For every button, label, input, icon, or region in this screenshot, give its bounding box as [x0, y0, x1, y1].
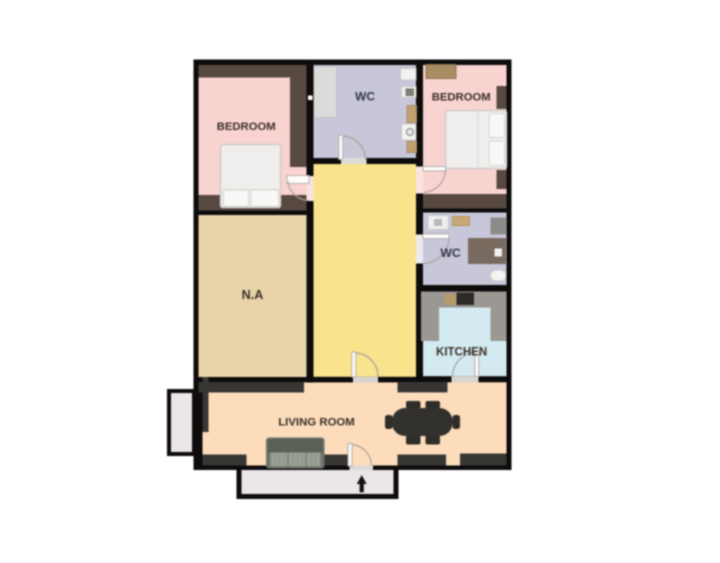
svg-text:BEDROOM: BEDROOM — [217, 121, 276, 133]
svg-text:LIVING ROOM: LIVING ROOM — [278, 416, 355, 428]
svg-text:N.A: N.A — [242, 288, 264, 302]
svg-text:WC: WC — [440, 246, 461, 260]
svg-text:KITCHEN: KITCHEN — [436, 347, 487, 359]
svg-text:WC: WC — [355, 90, 375, 104]
svg-text:BEDROOM: BEDROOM — [432, 92, 491, 104]
